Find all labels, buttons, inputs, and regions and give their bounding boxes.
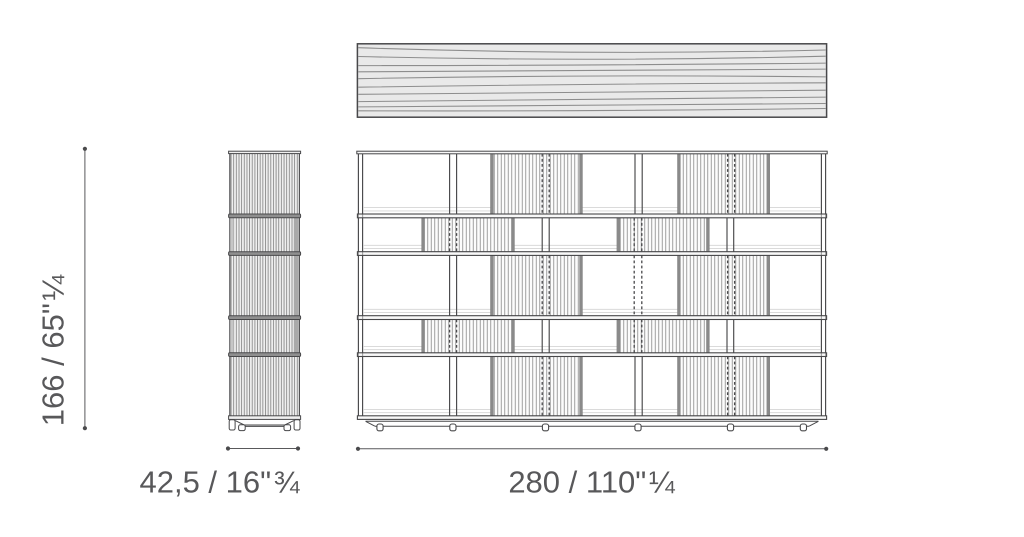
svg-text:166 / 65"¼: 166 / 65"¼ — [36, 274, 71, 427]
svg-text:280 / 110"¼: 280 / 110"¼ — [508, 464, 676, 499]
svg-text:42,5 / 16"¾: 42,5 / 16"¾ — [139, 464, 300, 499]
